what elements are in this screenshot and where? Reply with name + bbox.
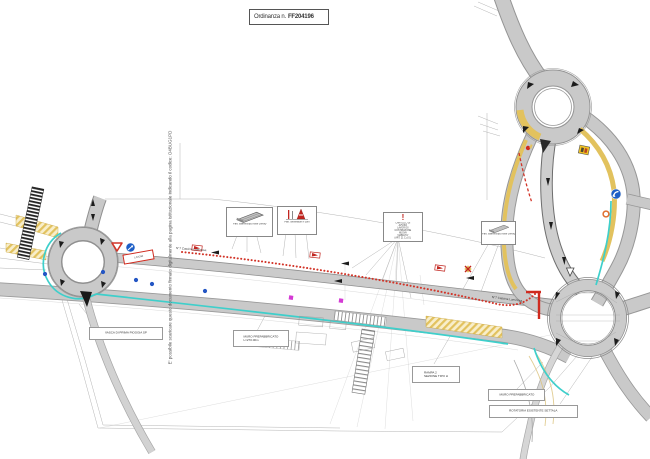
direction-arrow-board bbox=[435, 265, 446, 271]
label-vasca-prima-pioggia: VASCA DI PRIMA PIOGGIA SP bbox=[89, 327, 163, 340]
ordinance-road-plan: Ordinanza n. FF204196 E' possibile scari… bbox=[0, 0, 650, 459]
barrier-diagram-icon bbox=[234, 209, 266, 223]
callout-cones: Part. delineatori e coni bbox=[277, 206, 317, 235]
ordinance-label: Ordinanza n. bbox=[254, 14, 286, 20]
warning-line: (ART. 21 C.d.S.) bbox=[395, 237, 412, 240]
magenta-markers bbox=[289, 295, 344, 303]
callout-caption: Part. barriera tipo New Jersey bbox=[233, 223, 266, 226]
orange-circle-marker bbox=[603, 211, 609, 217]
callout-barrier-east: Part. barriera tipo New Jersey bbox=[481, 221, 516, 245]
ordinance-title-box: Ordinanza n. FF204196 bbox=[249, 9, 329, 25]
cones-diagram-icon bbox=[284, 208, 310, 221]
callout-caption: Part. barriera tipo New Jersey bbox=[482, 233, 515, 236]
blue-turn-sign bbox=[611, 189, 621, 199]
label-rotatoria-esistente: ROTATORIA ESISTENTE SETTALA bbox=[489, 405, 578, 418]
callout-caption: Part. delineatori e coni bbox=[284, 221, 309, 224]
red-warning-icon: ! bbox=[402, 214, 405, 222]
site-plan-drawing bbox=[0, 0, 650, 459]
roundabout-west bbox=[48, 227, 119, 298]
yellow-roadworks-sign bbox=[578, 145, 589, 155]
label-muro-prefabbricato-west: MURO PREFABBRICATO L=270.00m bbox=[233, 330, 289, 347]
direction-arrow-board bbox=[310, 252, 320, 258]
callout-warning: ! CARTELLO DI AVVISO LAVORI DI COSTRUZIO… bbox=[383, 212, 423, 242]
ordinance-number: FF204196 bbox=[288, 14, 314, 20]
blue-keep-right-sign bbox=[126, 243, 135, 252]
barrier-diagram-icon bbox=[487, 223, 511, 233]
cross-marker bbox=[464, 265, 471, 272]
callout-barrier-west: Part. barriera tipo New Jersey bbox=[226, 207, 273, 237]
digital-signature-watermark: E' possibile scaricare questo documento … bbox=[169, 75, 176, 420]
label-rampa-2: RAMPA 2 SEZIONE TIPO H bbox=[412, 366, 460, 383]
label-muro-prefabbricato-east: MURO PREFABBRICATO bbox=[488, 389, 545, 401]
